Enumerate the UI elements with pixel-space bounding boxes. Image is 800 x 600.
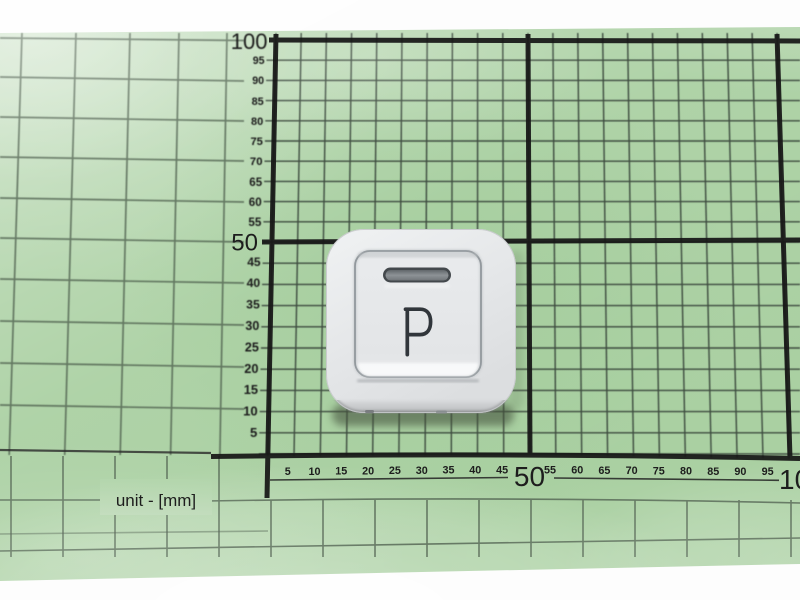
svg-text:unit - [mm]: unit - [mm] [116,491,196,510]
svg-text:25: 25 [389,465,401,477]
svg-text:95: 95 [253,55,265,67]
svg-text:50: 50 [231,230,258,257]
svg-text:55: 55 [248,216,262,229]
svg-text:30: 30 [416,465,428,477]
svg-text:85: 85 [252,96,264,108]
svg-text:35: 35 [442,465,454,477]
svg-text:70: 70 [626,465,638,477]
svg-text:25: 25 [245,341,259,355]
svg-text:65: 65 [598,465,610,477]
svg-text:60: 60 [249,196,262,209]
svg-text:75: 75 [653,465,665,477]
svg-text:80: 80 [680,466,692,478]
svg-text:10: 10 [243,404,258,419]
svg-text:90: 90 [734,466,746,478]
svg-text:15: 15 [335,466,347,478]
svg-text:40: 40 [247,276,261,290]
svg-text:65: 65 [249,177,262,189]
svg-text:35: 35 [246,298,260,312]
svg-text:40: 40 [469,465,481,477]
svg-text:5: 5 [285,466,291,478]
svg-text:95: 95 [762,466,774,478]
svg-text:80: 80 [251,116,263,128]
svg-text:100: 100 [779,464,800,495]
svg-text:75: 75 [250,136,262,148]
svg-text:100: 100 [231,29,268,54]
svg-text:5: 5 [250,425,257,440]
svg-text:90: 90 [252,75,264,87]
svg-text:15: 15 [244,382,258,397]
svg-text:60: 60 [571,465,583,477]
svg-text:30: 30 [245,319,259,333]
svg-text:70: 70 [250,156,263,168]
svg-text:20: 20 [362,465,374,477]
svg-text:85: 85 [707,466,719,478]
svg-text:50: 50 [514,461,545,492]
svg-text:10: 10 [308,466,320,478]
svg-text:45: 45 [496,464,508,476]
svg-text:55: 55 [544,465,556,477]
svg-text:20: 20 [244,361,258,376]
svg-text:45: 45 [247,255,261,269]
